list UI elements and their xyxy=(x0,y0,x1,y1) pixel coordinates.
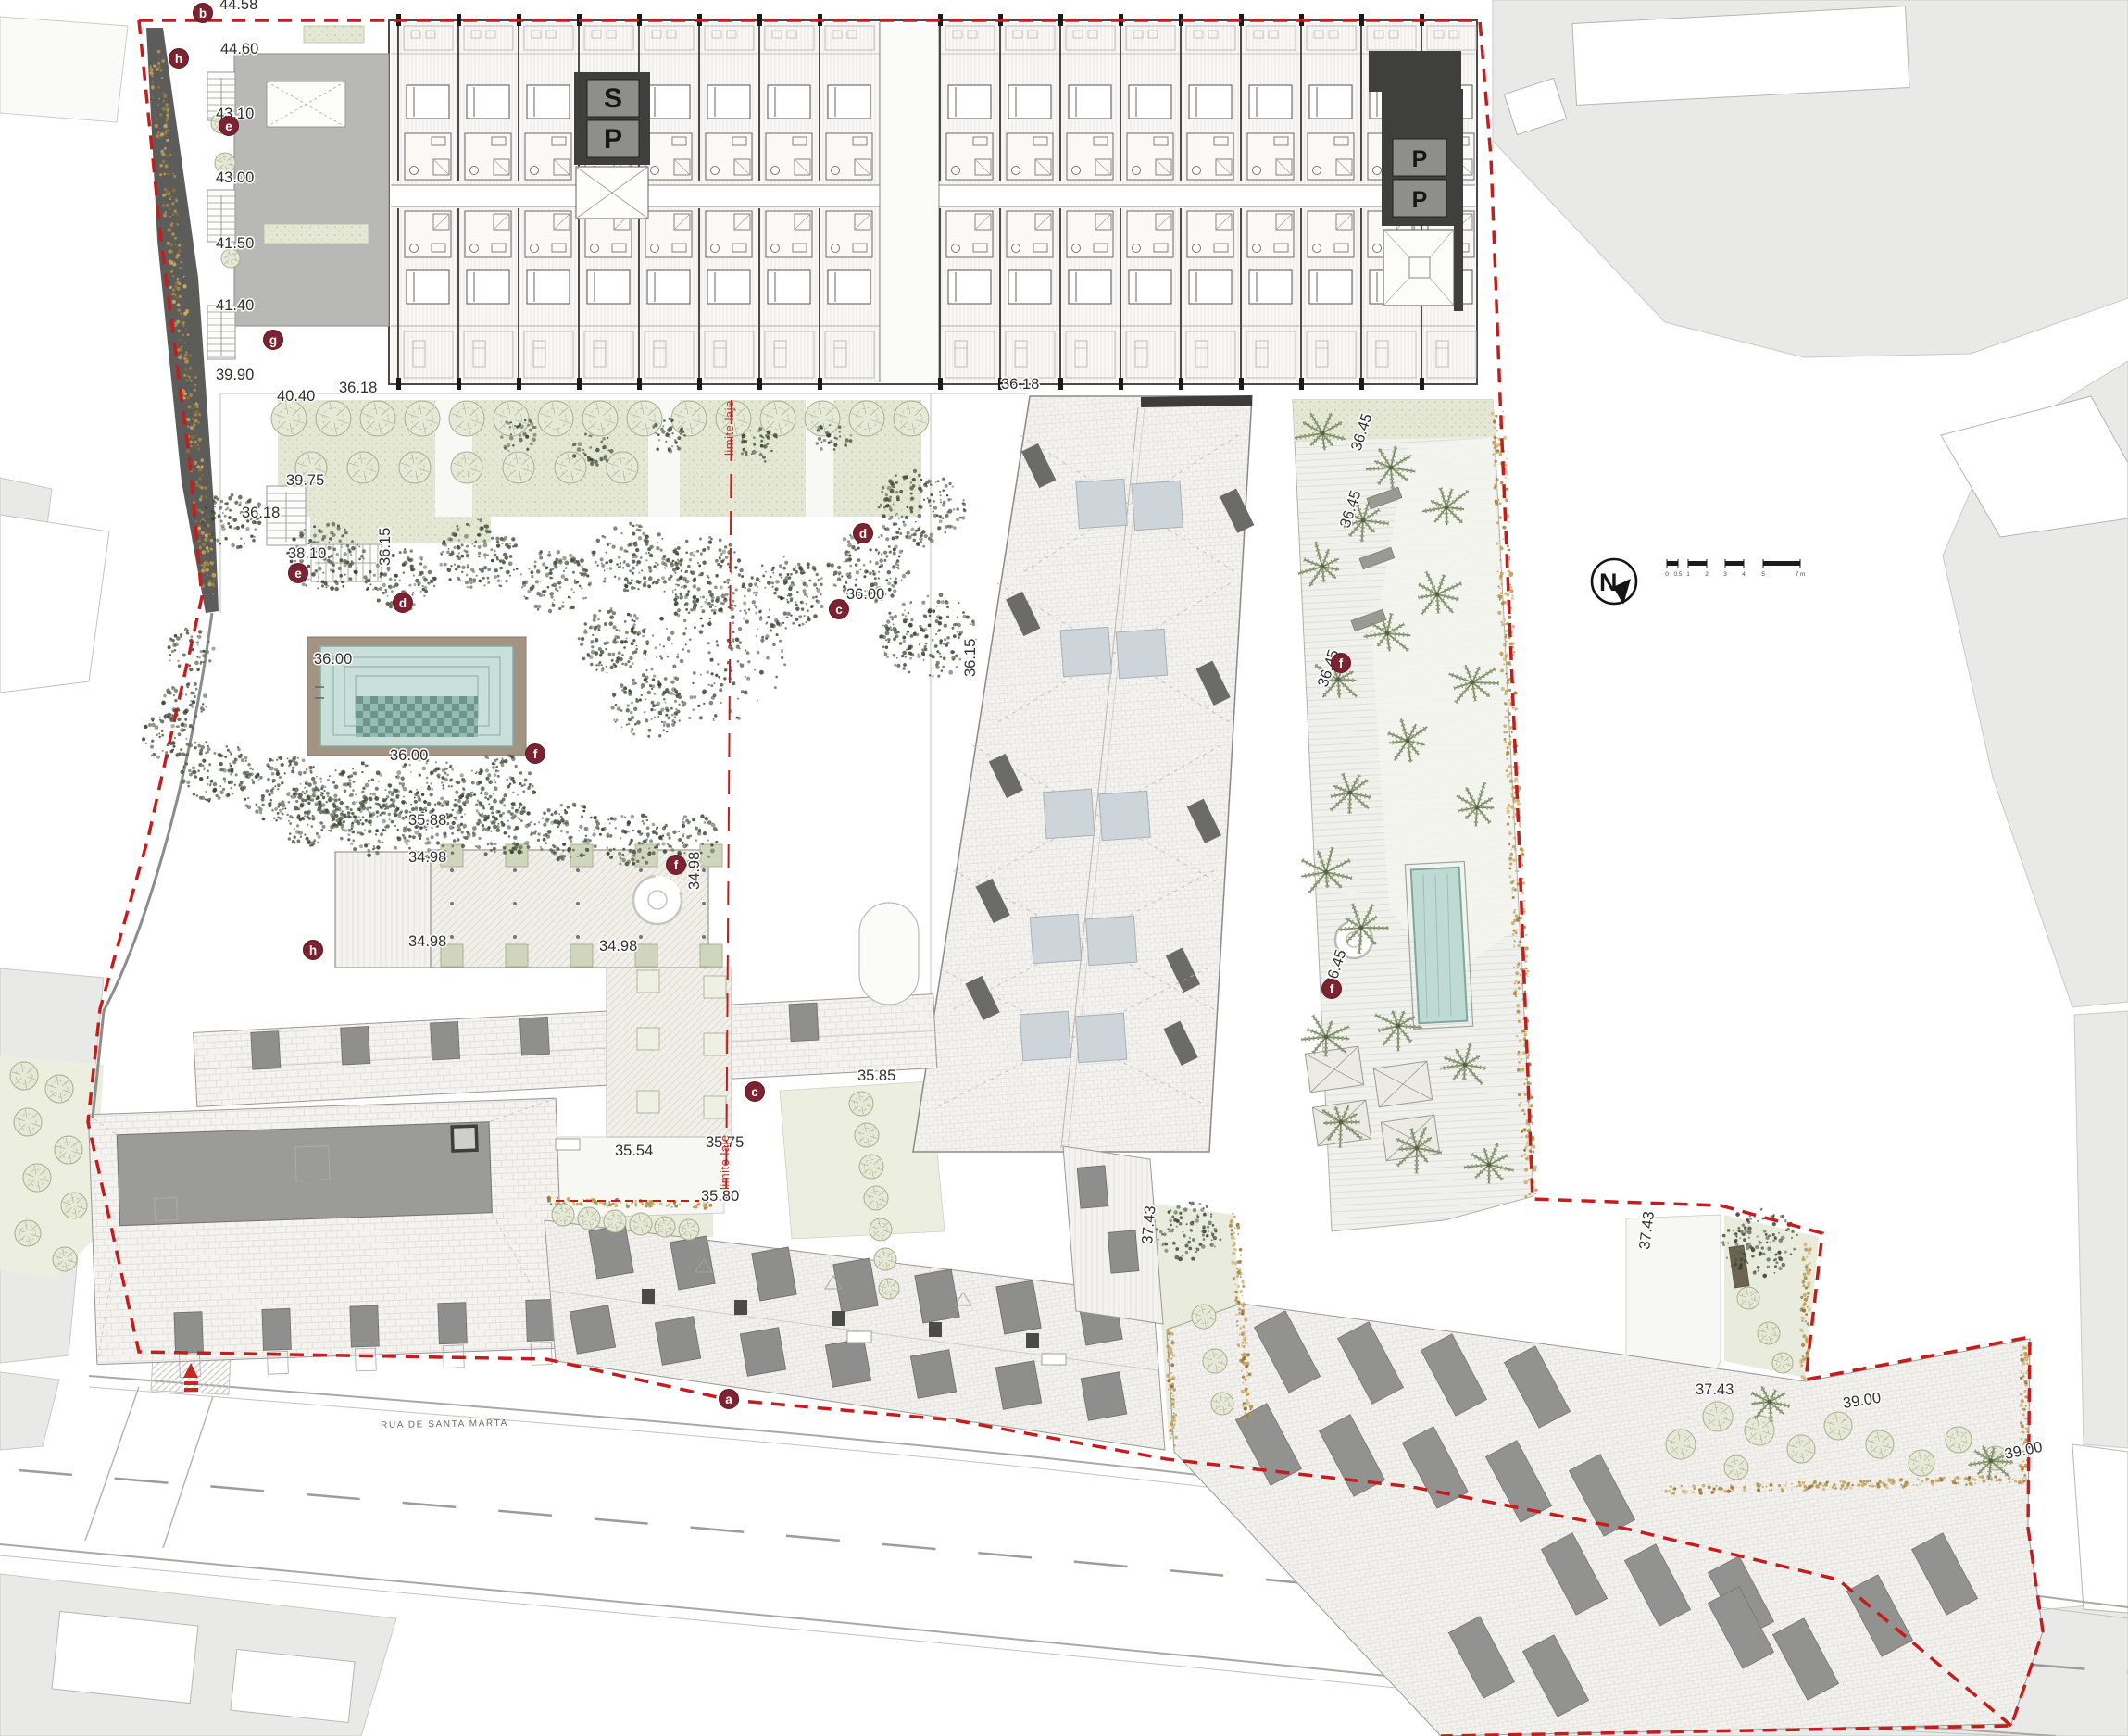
section-marker-b: b xyxy=(194,4,213,23)
scale-tick-label: 2 xyxy=(1705,571,1709,578)
elevation-label: 44.60 xyxy=(220,41,258,57)
section-marker-c: c xyxy=(745,1082,765,1102)
elevation-label: 34.98 xyxy=(686,852,703,890)
north-arrow-icon: N xyxy=(1592,559,1636,605)
section-marker-f: f xyxy=(667,856,686,875)
core-label: P xyxy=(604,124,622,155)
site-plan-page: RUA DE SANTA MARTA N 00.5123457 m 44.584… xyxy=(0,0,2128,1736)
section-marker-f: f xyxy=(526,744,545,764)
elevation-label: 36.18 xyxy=(242,505,280,521)
scale-tick-label: 7 m xyxy=(1796,571,1806,578)
elevation-label: 36.18 xyxy=(339,380,377,396)
elevation-label: 35.88 xyxy=(408,812,446,829)
section-marker-f: f xyxy=(1332,654,1351,673)
elevation-label: 36.15 xyxy=(377,528,394,566)
section-marker-e: e xyxy=(219,117,239,136)
elevation-label: 36.00 xyxy=(390,747,428,764)
limit-note-label: limite laje xyxy=(722,400,736,456)
elevation-label: 36.18 xyxy=(1001,376,1039,393)
scale-tick-label: 5 xyxy=(1761,571,1765,578)
limit-note-label: limite laje xyxy=(718,1134,732,1190)
core-label: P xyxy=(1412,146,1428,172)
scale-tick-label: 0.5 xyxy=(1673,571,1682,578)
elevation-label: 35.54 xyxy=(615,1143,653,1159)
scale-tick-label: 0 xyxy=(1665,571,1669,578)
elevation-label: 35.85 xyxy=(857,1068,895,1084)
core-label: P xyxy=(1412,187,1428,213)
street-name-label: RUA DE SANTA MARTA xyxy=(381,1418,508,1430)
elevation-label: 36.00 xyxy=(314,651,352,668)
elevation-label: 44.58 xyxy=(219,0,257,13)
elevation-label: 38.10 xyxy=(288,545,326,562)
elevation-label: 34.98 xyxy=(408,849,446,866)
section-marker-c: c xyxy=(830,600,849,619)
section-marker-d: d xyxy=(394,593,413,613)
scale-tick-label: 4 xyxy=(1742,571,1746,578)
elevation-label: 34.98 xyxy=(599,938,637,955)
section-marker-d: d xyxy=(854,524,873,543)
elevation-label: 43.00 xyxy=(216,169,254,186)
section-marker-h: h xyxy=(169,49,189,69)
elevation-label: 37.43 xyxy=(1696,1381,1734,1398)
scale-tick-label: 3 xyxy=(1723,571,1727,578)
elevation-label: 41.40 xyxy=(216,297,254,314)
section-marker-a: a xyxy=(720,1390,739,1409)
site-plan-canvas: RUA DE SANTA MARTA N 00.5123457 m 44.584… xyxy=(0,0,2128,1736)
elevation-label: 39.75 xyxy=(286,472,324,489)
section-marker-h: h xyxy=(304,941,323,960)
scale-bar: 00.5123457 m xyxy=(1665,559,1805,578)
elevation-label: 36.15 xyxy=(962,639,979,677)
elevation-label: 40.40 xyxy=(277,388,315,405)
elevation-label: 37.43 xyxy=(1139,1205,1159,1245)
elevation-label: 36.00 xyxy=(846,586,884,603)
section-marker-g: g xyxy=(264,331,283,350)
section-marker-e: e xyxy=(289,564,308,583)
elevation-label: 39.90 xyxy=(216,367,254,383)
elevation-label: 41.50 xyxy=(216,235,254,252)
core-label: S xyxy=(604,83,622,114)
section-marker-f: f xyxy=(1322,980,1342,999)
scale-tick-label: 1 xyxy=(1686,571,1690,578)
elevation-label: 34.98 xyxy=(408,933,446,950)
